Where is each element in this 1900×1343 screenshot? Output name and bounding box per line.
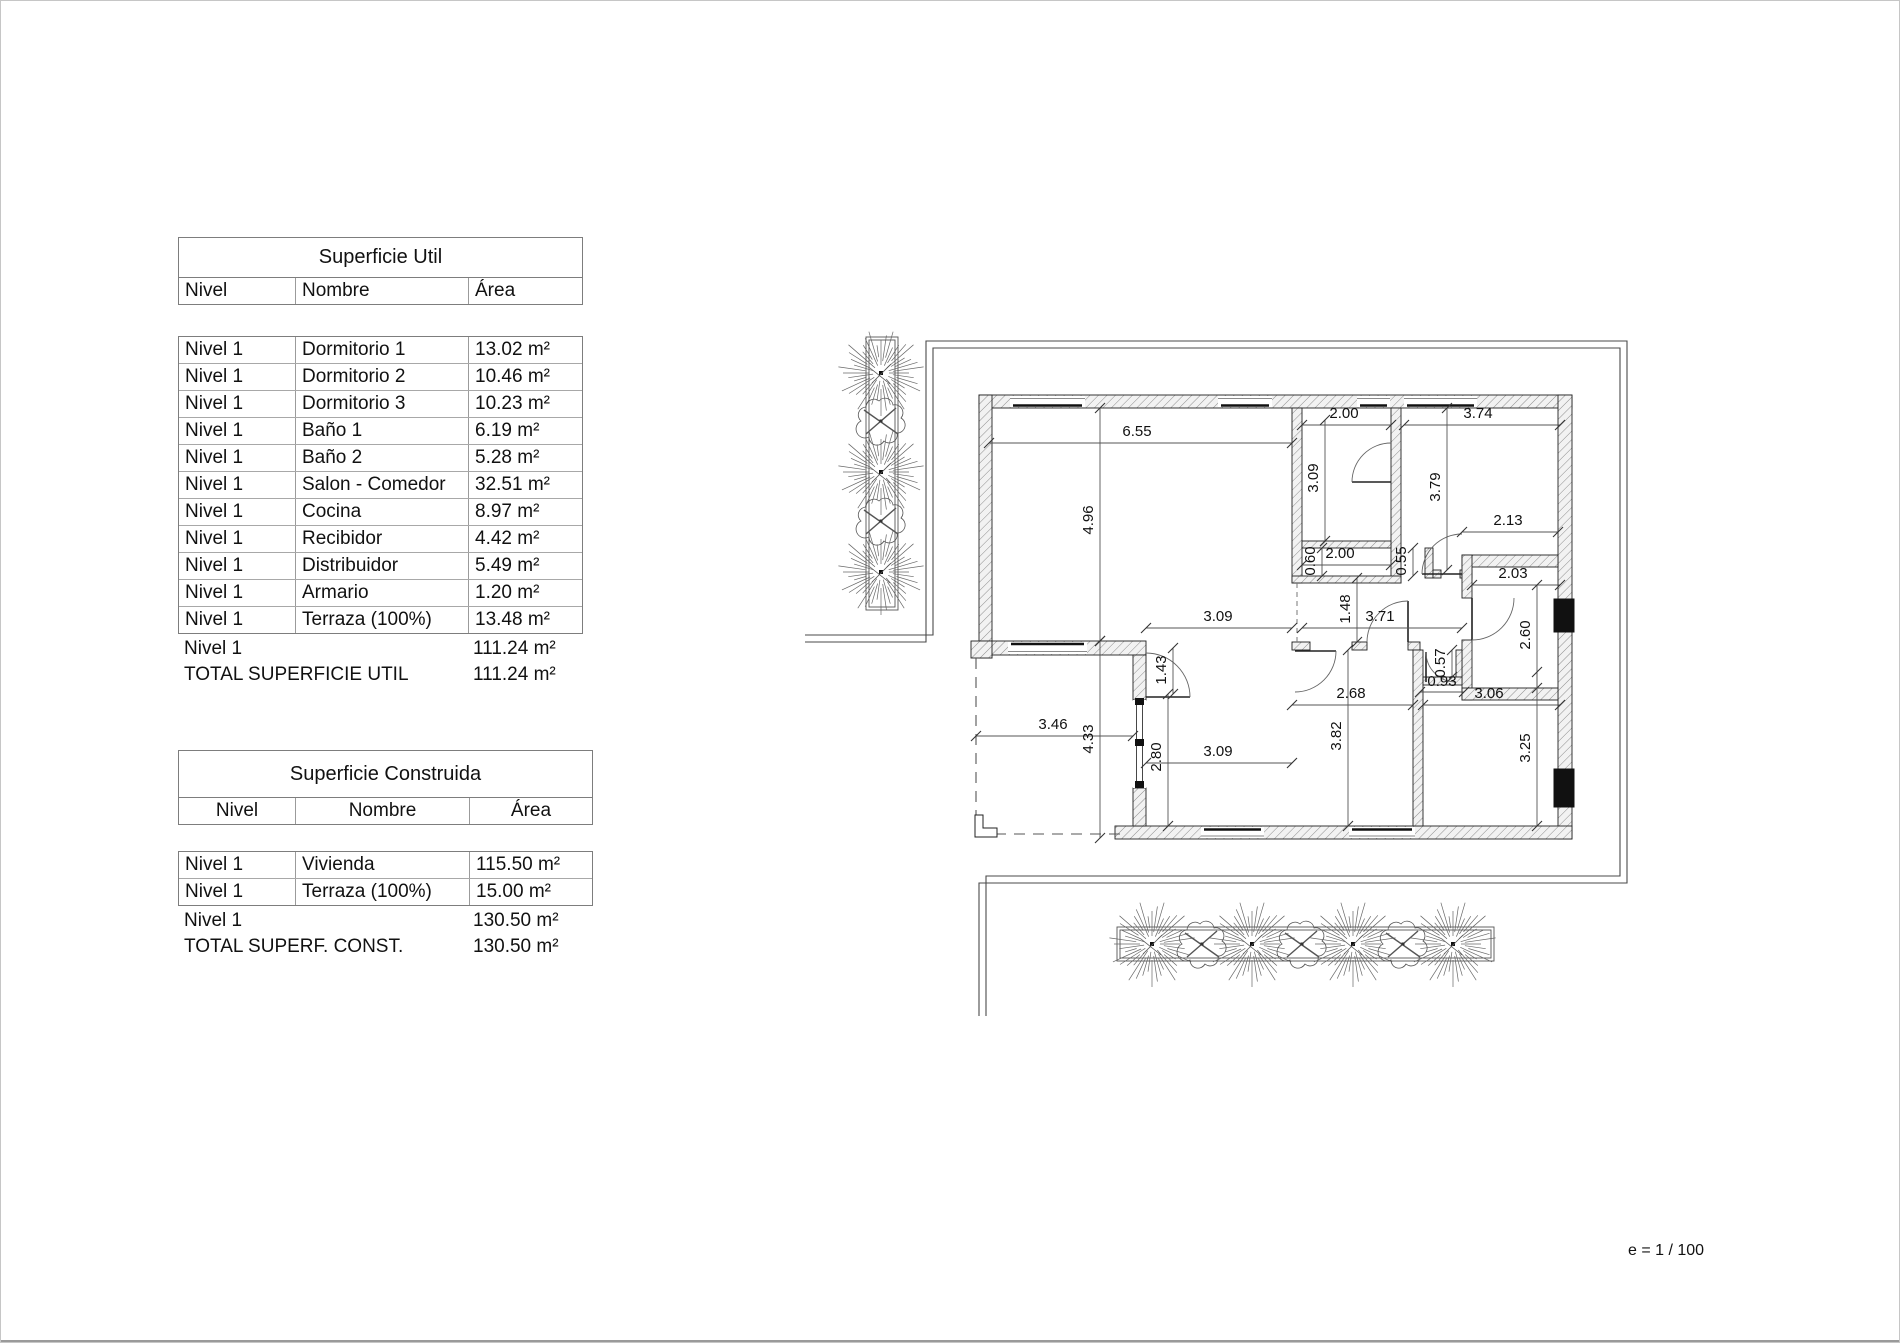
dimension-label: 6.55 (1122, 423, 1151, 440)
scale-note: e = 1 / 100 (1628, 1242, 1704, 1260)
dimension-label: 3.74 (1463, 405, 1492, 422)
dimension-label: 2.03 (1498, 565, 1527, 582)
building-walls (971, 395, 1572, 839)
dimension-label: 3.71 (1365, 608, 1394, 625)
window-right-1 (1554, 599, 1574, 632)
floor-plan: 6.552.003.742.132.002.033.093.710.932.68… (0, 0, 1900, 1343)
corner-block (975, 815, 997, 837)
dimension-label: 2.00 (1329, 405, 1358, 422)
dimension-label: 1.43 (1153, 655, 1170, 684)
glazed-wall (1133, 698, 1146, 788)
dimension-label: 3.79 (1427, 472, 1444, 501)
dimension-label: 4.33 (1080, 724, 1097, 753)
dimension-label: 0.57 (1432, 648, 1449, 677)
hedge-bottom (1109, 903, 1495, 987)
dimension-label: 0.60 (1302, 546, 1319, 575)
windows (1008, 396, 1574, 838)
dimension-label: 2.68 (1336, 685, 1365, 702)
dimension-label: 3.09 (1305, 463, 1322, 492)
window-right-2 (1554, 769, 1574, 807)
dimension-label: 2.60 (1517, 620, 1534, 649)
dimension-label: 0.55 (1393, 546, 1410, 575)
terrace-boundary (975, 658, 1123, 837)
dimension-label: 3.06 (1474, 685, 1503, 702)
hedge-left (838, 332, 923, 615)
drawing-sheet: Superficie Util Nivel Nombre Área Nivel … (0, 0, 1900, 1343)
dimension-layer: 6.552.003.742.132.002.033.093.710.932.68… (971, 403, 1565, 843)
dimension-label: 3.09 (1203, 743, 1232, 760)
dimension-label: 3.46 (1038, 716, 1067, 733)
door-bathroom (1472, 598, 1514, 640)
door-kitchen (1352, 443, 1391, 482)
dimension-label: 3.25 (1517, 733, 1534, 762)
dimension-label: 3.82 (1328, 721, 1345, 750)
dimension-label: 3.09 (1203, 608, 1232, 625)
dimension-label: 2.13 (1493, 512, 1522, 529)
site-boundary (805, 341, 1627, 1016)
dimension-label: 2.00 (1325, 545, 1354, 562)
door-bedroom-lower (1295, 651, 1336, 692)
dimension-label: 4.96 (1080, 505, 1097, 534)
dimension-label: 2.80 (1148, 742, 1165, 771)
dimension-label: 1.48 (1337, 594, 1354, 623)
